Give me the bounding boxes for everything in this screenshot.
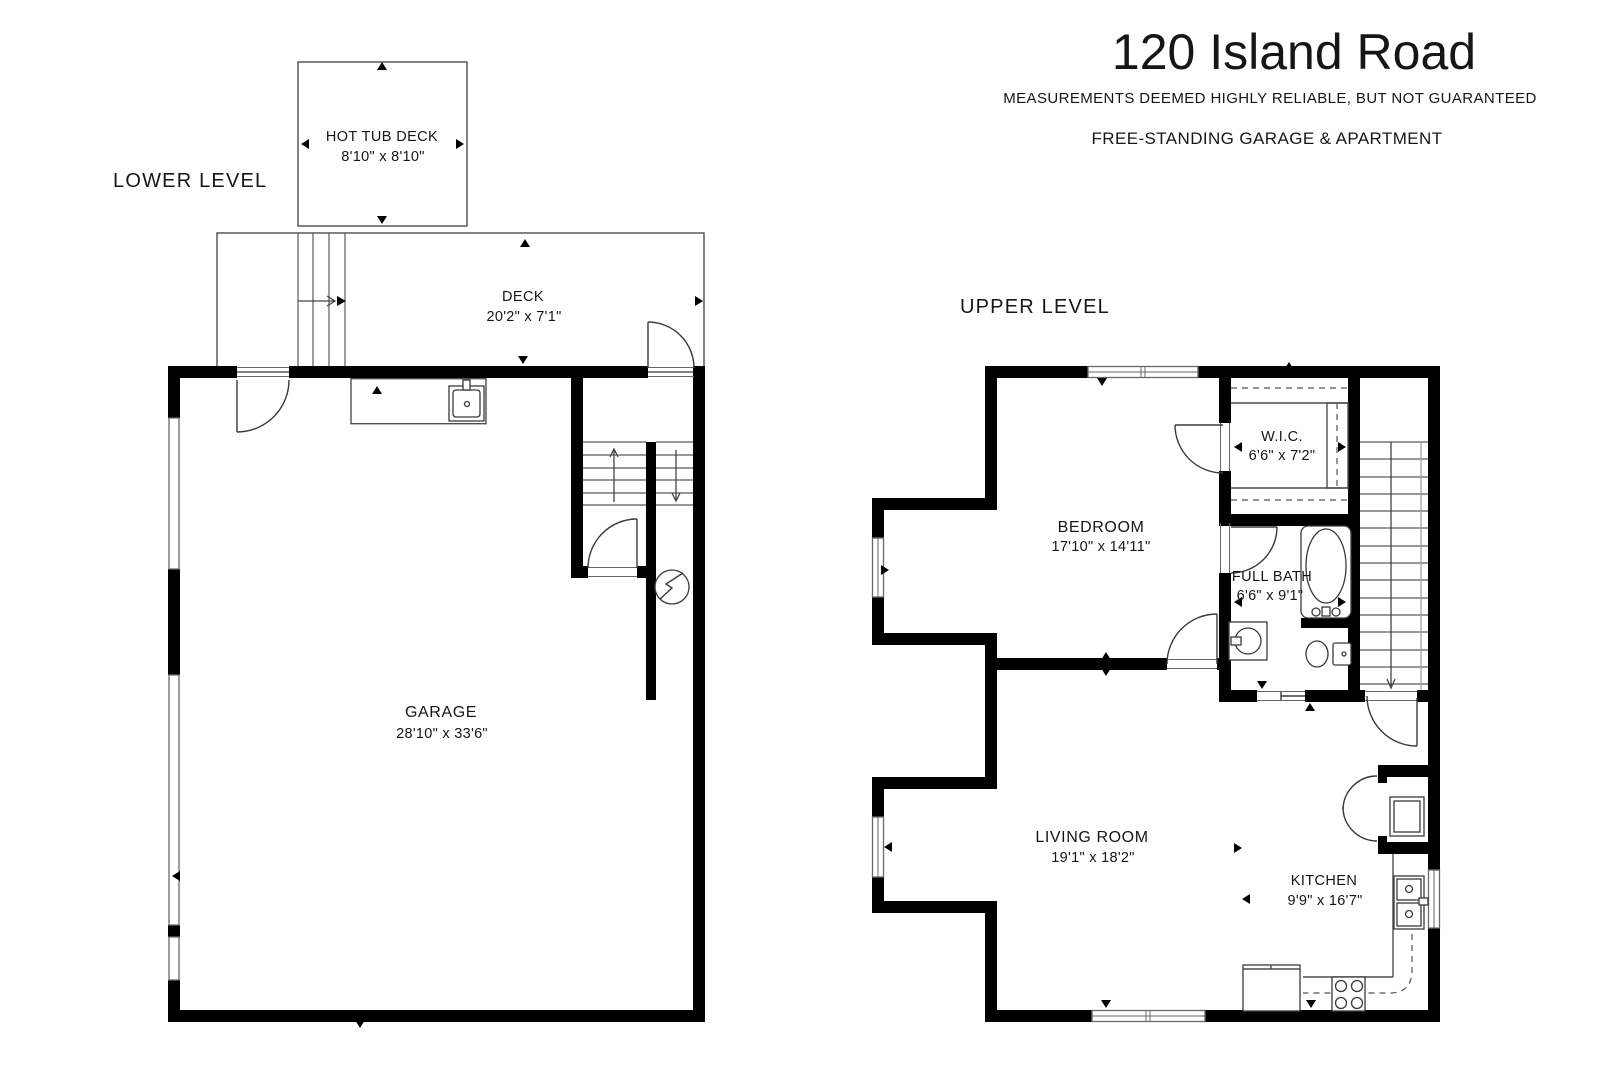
stairwell-door-lower <box>588 519 637 568</box>
deck-dims: 20'2" x 7'1" <box>486 309 561 325</box>
kitchen-label: KITCHEN <box>1291 873 1357 889</box>
bedroom-top-window <box>1088 367 1198 378</box>
lower-stairs-up-flight <box>583 442 646 505</box>
lower-stairs-down-flight <box>656 442 693 505</box>
hot-tub-deck-dims: 8'10" x 8'10" <box>341 149 424 165</box>
floor-plan-page: 120 Island Road MEASUREMENTS DEEMED HIGH… <box>0 0 1620 1080</box>
building-subtitle: FREE-STANDING GARAGE & APARTMENT <box>1092 129 1443 148</box>
title-block: 120 Island Road MEASUREMENTS DEEMED HIGH… <box>1003 24 1537 148</box>
disclaimer-text: MEASUREMENTS DEEMED HIGHLY RELIABLE, BUT… <box>1003 90 1537 107</box>
nook-double-doors <box>1343 776 1377 841</box>
lower-stairwell <box>571 378 693 700</box>
wic-label: W.I.C. <box>1261 429 1303 445</box>
deck-outline <box>217 233 704 372</box>
living-room-dims: 19'1" x 18'2" <box>1051 850 1134 866</box>
bedroom-label: BEDROOM <box>1058 519 1145 536</box>
stove <box>1332 977 1365 1011</box>
apartment-interior-walls <box>997 378 1428 854</box>
garage-entry-door <box>237 380 289 432</box>
kitchen-sink <box>1394 876 1428 929</box>
toilet <box>1306 641 1351 667</box>
stairs-bottom-door <box>1367 696 1417 746</box>
living-bay-window <box>873 817 884 877</box>
garage-left-windows <box>169 418 179 980</box>
lower-level-label: LOWER LEVEL <box>113 170 267 192</box>
kitchen-appliance-nook <box>1390 797 1424 836</box>
living-room-label: LIVING ROOM <box>1035 829 1148 846</box>
deck-label: DECK <box>502 289 544 305</box>
kitchen-dims: 9'9" x 16'7" <box>1287 893 1362 909</box>
kitchen-window <box>1429 870 1440 928</box>
bedroom-door <box>1167 614 1217 664</box>
hot-tub-deck-label: HOT TUB DECK <box>326 129 438 145</box>
floor-plan-drawing: 120 Island Road MEASUREMENTS DEEMED HIGH… <box>0 0 1620 1080</box>
page-title: 120 Island Road <box>1112 24 1476 80</box>
utility-sink <box>449 380 484 421</box>
upper-level-label: UPPER LEVEL <box>960 296 1110 318</box>
bath-door-bedroom <box>1231 527 1277 573</box>
full-bath-dims: 6'6" x 9'1" <box>1237 588 1304 604</box>
garage-counter <box>351 379 486 424</box>
wic-door <box>1175 425 1223 473</box>
electrical-panel-icon <box>655 570 689 604</box>
garage-dims: 28'10" x 33'6" <box>396 726 488 742</box>
refrigerator <box>1243 965 1300 1011</box>
living-bottom-window <box>1092 1011 1205 1022</box>
full-bath-label: FULL BATH <box>1232 569 1312 585</box>
upper-stairs <box>1360 442 1428 690</box>
bedroom-dims: 17'10" x 14'11" <box>1051 539 1150 555</box>
garage-walls <box>168 366 705 1022</box>
garage-label: GARAGE <box>405 704 477 721</box>
door-thresholds-upper <box>1167 423 1417 701</box>
wic-dims: 6'6" x 7'2" <box>1249 448 1316 464</box>
bathroom-sink <box>1229 622 1267 660</box>
